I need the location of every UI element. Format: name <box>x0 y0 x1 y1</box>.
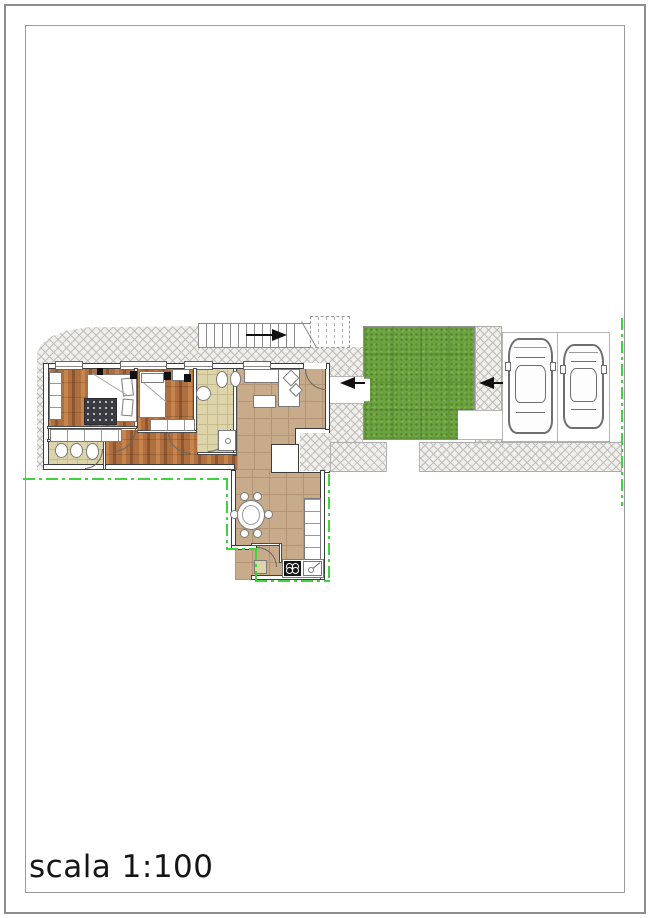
toilet <box>216 371 228 388</box>
garden-gate-arrow-tail <box>494 382 503 384</box>
dining-chair <box>253 529 262 538</box>
pillow <box>141 373 164 383</box>
stair-direction-arrow-icon <box>272 329 287 341</box>
car-rear-window-line <box>571 409 596 410</box>
boundary-line <box>226 478 228 550</box>
notch-paving-pocket <box>300 433 330 471</box>
car-rear-window-line <box>516 412 545 413</box>
window-master-left <box>55 361 83 370</box>
stall-divider-line <box>557 333 558 441</box>
car-hood-line <box>514 347 547 348</box>
car-top-view-1 <box>508 338 553 434</box>
car-windshield-line <box>516 357 545 358</box>
boundary-line <box>328 474 330 582</box>
toilet <box>86 443 99 460</box>
stove <box>284 561 301 576</box>
wall-bottom-main <box>43 464 235 470</box>
closet-bed2 <box>150 419 195 431</box>
sink <box>70 443 83 458</box>
car-mirror-right <box>601 365 607 374</box>
wall-lamp-icon <box>164 372 171 380</box>
wall-pantry-top <box>251 543 281 546</box>
car-hood-line <box>569 352 598 353</box>
paving-bottom-band <box>330 442 622 472</box>
wall-lamp-icon <box>184 374 191 382</box>
boundary-line <box>255 580 330 582</box>
car-top-view-2 <box>563 344 604 429</box>
kitchen-counter-right <box>304 498 321 560</box>
car-roof <box>570 368 597 402</box>
boundary-line-right <box>621 318 623 506</box>
boundary-line <box>23 478 227 480</box>
stair-direction-tail <box>246 334 272 336</box>
car-mirror-right <box>550 362 556 371</box>
shower-tray <box>218 430 236 451</box>
coffee-table <box>253 395 276 408</box>
car-mirror-left <box>560 365 566 374</box>
boundary-line <box>255 548 257 582</box>
bidet <box>230 371 241 387</box>
car-windshield-line <box>571 361 596 362</box>
wall-lamp-icon <box>97 368 103 375</box>
stair-upper-flight-dashed <box>310 316 350 348</box>
bedside-rug <box>84 398 117 425</box>
car-mirror-left <box>505 362 511 371</box>
paving-gap-below-garden <box>386 442 420 472</box>
garden-gate-arrow-icon <box>479 377 494 389</box>
faucet-spout <box>313 562 321 569</box>
wall-bath-bottom <box>197 452 237 455</box>
wall-smallbath-right <box>103 441 106 470</box>
drawing-sheet: scala 1:100 <box>0 0 650 918</box>
path-from-parking <box>458 410 504 440</box>
car-roof <box>515 365 546 404</box>
shower-drain <box>225 438 231 444</box>
wardrobe-master <box>49 372 62 420</box>
entrance-arrow-icon <box>340 377 355 389</box>
pillow <box>121 399 133 417</box>
entrance-arrow-tail <box>355 382 365 384</box>
window-bedrooms <box>120 361 167 370</box>
notch-wall-lower <box>271 444 299 473</box>
kitchen-sink <box>303 561 322 576</box>
dining-table <box>237 500 265 530</box>
dining-chair <box>240 529 249 538</box>
round-sink <box>196 386 211 401</box>
scale-label: scala 1:100 <box>29 849 214 885</box>
dining-chair <box>264 510 273 519</box>
boundary-line <box>226 548 257 550</box>
wall-lamp-icon <box>130 371 137 379</box>
closet-master <box>50 429 122 442</box>
sink <box>55 443 68 458</box>
dining-table-inner-ring <box>242 505 260 525</box>
